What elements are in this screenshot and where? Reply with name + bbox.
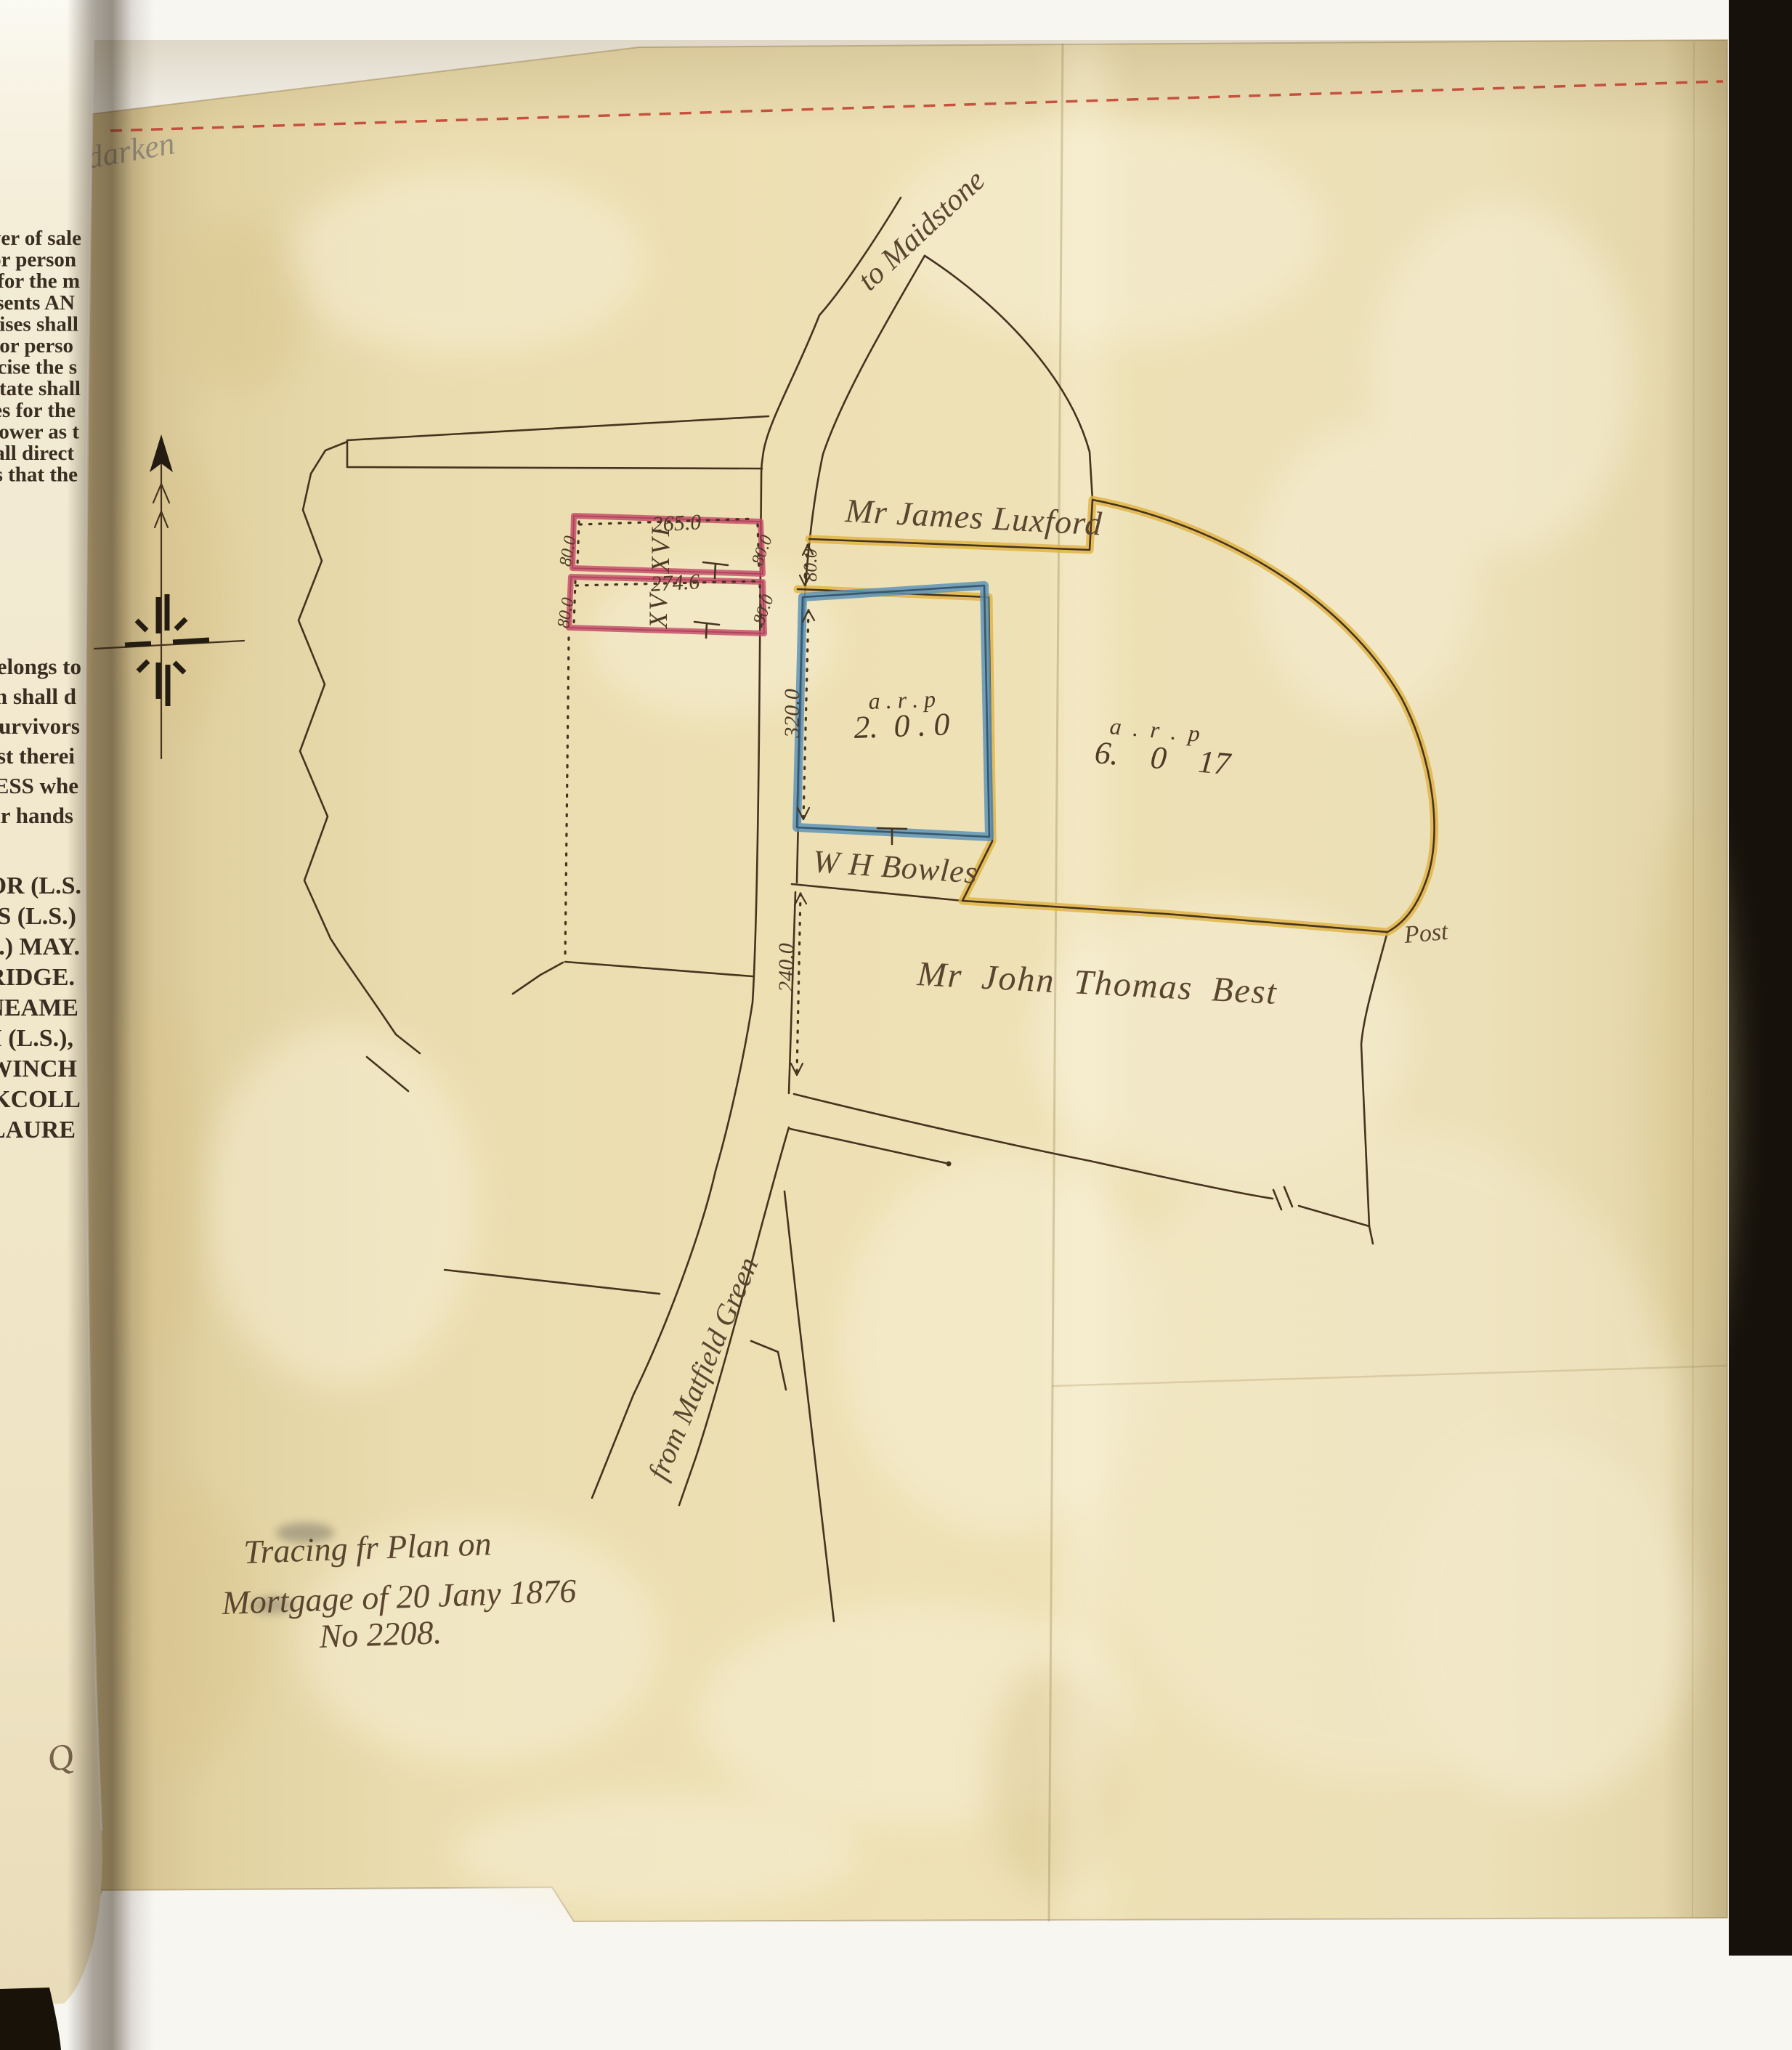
book-text-line: their hands <box>0 803 73 828</box>
scanned-document: to Maidstone from Matfield Green Mr Jame… <box>0 0 1792 2050</box>
book-text-line: .s.) WINCH <box>0 1056 77 1082</box>
book-text-line: TNESS whe <box>0 773 78 798</box>
book-text-line: them shall d <box>0 684 76 709</box>
book-text-line: premises shall <box>0 312 78 336</box>
blue-area-value: 2. 0 . 0 <box>854 706 951 745</box>
gutter-shadow <box>67 0 154 2050</box>
book-text-line: IAM (L.S.), <box>0 1025 73 1052</box>
post-label: Post <box>1402 918 1450 949</box>
book-text-line: MAS (L.S.) <box>0 903 76 930</box>
vellum-top-shade <box>86 40 1727 134</box>
line-end-dot <box>946 1162 952 1167</box>
blue-west-measure: 320.0 <box>780 689 804 739</box>
book-text-line: presents AN <box>0 291 75 315</box>
book-text-line: nterest therei <box>0 743 75 769</box>
book-text-line: .) NEAME <box>0 994 78 1021</box>
strip-measure: 80.0 <box>800 548 821 582</box>
book-text-line: ees that the <box>0 463 78 487</box>
xvi-numeral: XVI <box>646 526 675 575</box>
book-text-line: rances for the <box>0 399 76 422</box>
plan-scan: to Maidstone from Matfield Green Mr Jame… <box>0 0 1792 2050</box>
book-text-line: RIDGE. <box>0 964 75 991</box>
xv-numeral: XV <box>644 591 673 630</box>
south-road-measure: 240.0 <box>774 943 798 992</box>
book-text-line: shall direct <box>0 442 74 465</box>
book-text-line: ons or person <box>0 248 76 272</box>
book-text-line: ersons or perso <box>0 334 73 357</box>
book-text-line: .s.) LAURE <box>0 1117 76 1143</box>
book-text-line: exercise the s <box>0 356 77 379</box>
caption-line-3: No 2208. <box>318 1613 442 1655</box>
book-board-edge <box>1729 0 1792 1956</box>
